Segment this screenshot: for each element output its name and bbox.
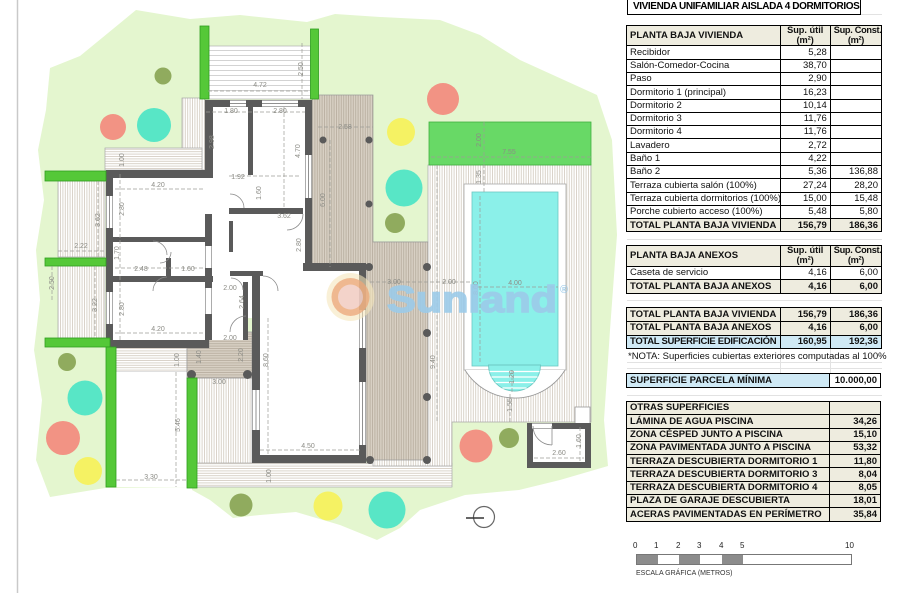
svg-text:6.00: 6.00 [320,193,327,207]
svg-text:2.80: 2.80 [296,238,303,252]
svg-text:3.30: 3.30 [144,474,158,481]
svg-text:3.62: 3.62 [277,213,291,220]
svg-text:2.60: 2.60 [552,450,566,457]
svg-text:2.64: 2.64 [239,295,246,309]
svg-text:3.00: 3.00 [212,379,226,386]
svg-text:2.58: 2.58 [338,124,352,131]
svg-text:1.00: 1.00 [266,469,273,483]
svg-text:Sunland: Sunland [387,279,557,320]
svg-text:1.70: 1.70 [114,246,121,260]
svg-text:1.92: 1.92 [231,174,245,181]
svg-text:2.98: 2.98 [209,135,216,149]
svg-text:8.60: 8.60 [263,353,270,367]
svg-text:1.60: 1.60 [576,434,583,448]
svg-text:7.55: 7.55 [502,149,516,156]
svg-text:2.48: 2.48 [134,266,148,273]
svg-text:2.80: 2.80 [273,108,287,115]
svg-text:1.55: 1.55 [507,398,514,412]
svg-text:4.70: 4.70 [295,144,302,158]
svg-text:®: ® [560,284,568,296]
svg-text:3.62: 3.62 [95,213,102,227]
svg-text:5.46: 5.46 [175,418,182,432]
svg-text:2.00: 2.00 [223,285,237,292]
svg-text:2.80: 2.80 [119,202,126,216]
svg-text:2.50: 2.50 [298,62,305,76]
svg-text:2.22: 2.22 [74,243,88,250]
svg-text:1.60: 1.60 [256,186,263,200]
svg-text:4.72: 4.72 [253,82,267,89]
svg-text:1.35: 1.35 [476,170,483,184]
svg-text:1.00: 1.00 [119,153,126,167]
svg-text:2.80: 2.80 [119,302,126,316]
svg-text:4.20: 4.20 [151,326,165,333]
svg-text:2.20: 2.20 [238,348,245,362]
svg-text:1.00: 1.00 [174,353,181,367]
svg-text:1.60: 1.60 [181,266,195,273]
svg-text:4.20: 4.20 [151,182,165,189]
svg-text:3.22: 3.22 [92,298,99,312]
svg-text:9.40: 9.40 [430,355,437,369]
svg-text:2.50: 2.50 [49,276,56,290]
svg-text:4.50: 4.50 [301,443,315,450]
svg-text:1.80: 1.80 [224,108,238,115]
svg-text:2.00: 2.00 [223,335,237,342]
svg-text:1.20: 1.20 [509,370,516,384]
svg-text:2.00: 2.00 [476,133,483,147]
svg-text:1.40: 1.40 [196,350,203,364]
